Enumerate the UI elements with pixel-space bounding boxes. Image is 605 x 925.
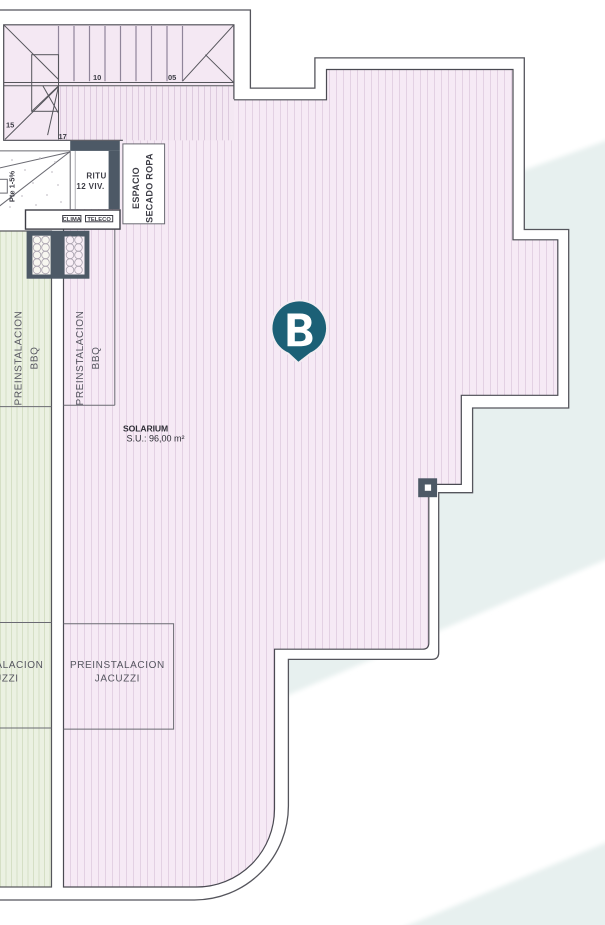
svg-text:S.U.: 96,00 m²: S.U.: 96,00 m² [127, 434, 185, 444]
svg-text:05: 05 [168, 73, 176, 82]
svg-text:PREINSTALACION: PREINSTALACION [70, 660, 165, 671]
svg-text:PREINSTALACION: PREINSTALACION [0, 660, 43, 671]
svg-text:12 VIV.: 12 VIV. [76, 182, 104, 191]
svg-text:PREINSTALACION: PREINSTALACION [14, 311, 25, 406]
svg-text:SOLARIUM: SOLARIUM [123, 424, 168, 434]
svg-text:17: 17 [59, 132, 67, 141]
svg-text:RITU: RITU [86, 172, 106, 181]
svg-text:BBQ: BBQ [30, 347, 41, 370]
svg-text:10: 10 [93, 73, 101, 82]
svg-text:Pte 1-5%: Pte 1-5% [8, 171, 17, 203]
svg-text:JACUZZI: JACUZZI [0, 674, 19, 685]
svg-text:TELECO: TELECO [87, 217, 111, 223]
svg-text:CLIMA: CLIMA [63, 217, 82, 223]
svg-text:15: 15 [6, 121, 14, 130]
svg-text:BBQ: BBQ [91, 347, 102, 370]
svg-text:PREINSTALACION: PREINSTALACION [75, 311, 86, 406]
svg-text:SECADO ROPA: SECADO ROPA [145, 153, 155, 223]
svg-text:JACUZZI: JACUZZI [95, 674, 140, 685]
svg-text:ESPACIO: ESPACIO [131, 167, 141, 209]
